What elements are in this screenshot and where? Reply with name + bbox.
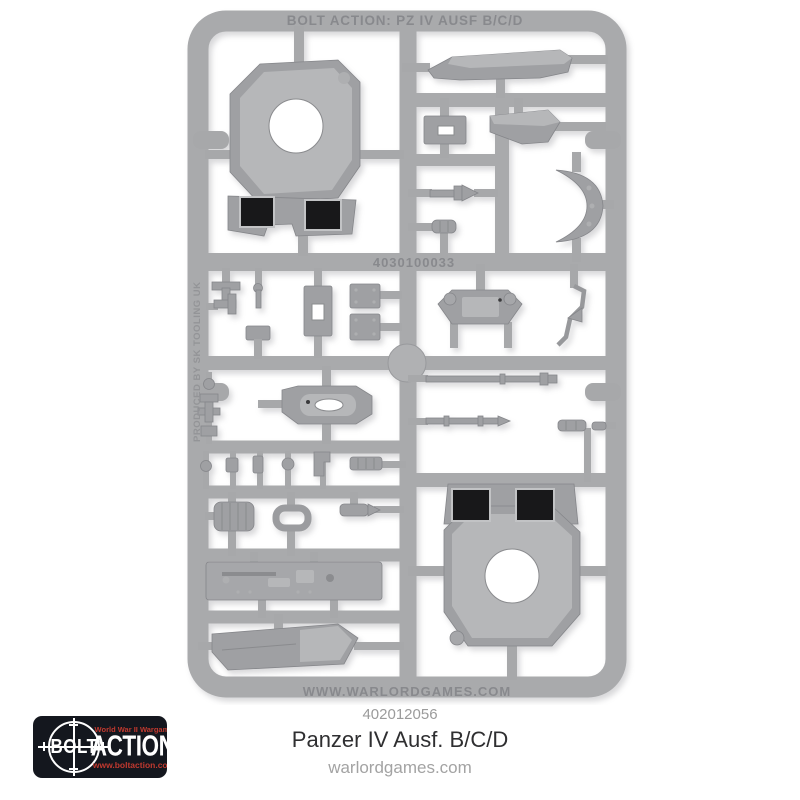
sprue-bottom-embossed-text: WWW.WARLORDGAMES.COM: [303, 684, 511, 699]
tool-stowage-plate-part: [206, 552, 382, 618]
small-fittings-upper-left: [206, 268, 270, 359]
square-plates-part: [350, 284, 402, 340]
ribbed-muffler-part: [205, 492, 254, 556]
sprue-side-embossed-text: PRODUCED BY SK TOOLING UK: [192, 282, 203, 442]
gun-mantlet-crescent-part: [556, 152, 614, 262]
oval-hatch-plate-part: [258, 366, 372, 444]
slotted-vertical-plate-part: [304, 268, 332, 358]
short-gun-barrel-part: [408, 416, 510, 426]
tapered-barrel-fitting-part: [408, 185, 498, 201]
product-photo: BOLT ACTION: PZ IV AUSF B/C/D 4030100033…: [0, 0, 800, 800]
logo-action-word: ACTION®: [90, 732, 167, 761]
bent-rod-fitting-part: [558, 264, 584, 345]
sprue-top-embossed-text: BOLT ACTION: PZ IV AUSF B/C/D: [287, 13, 523, 28]
logo-right-block: World War II Wargame ACTION® www.boltact…: [104, 716, 164, 778]
turret-base-part: [408, 484, 608, 680]
turret-roof-part: [205, 26, 404, 256]
bolt-action-logo: BOLT World War II Wargame ACTION® www.bo…: [33, 716, 167, 778]
sprue-photo: BOLT ACTION: PZ IV AUSF B/C/D 4030100033…: [180, 5, 635, 705]
link-ring-part: [276, 492, 308, 556]
small-fittings-row-part: [201, 451, 407, 489]
long-gun-barrel-part: [408, 373, 557, 385]
angled-hull-plate-part: [402, 50, 608, 98]
hinged-hatch-plate-part: [438, 264, 522, 348]
sprue-mould-code-text: 4030100033: [373, 255, 455, 270]
